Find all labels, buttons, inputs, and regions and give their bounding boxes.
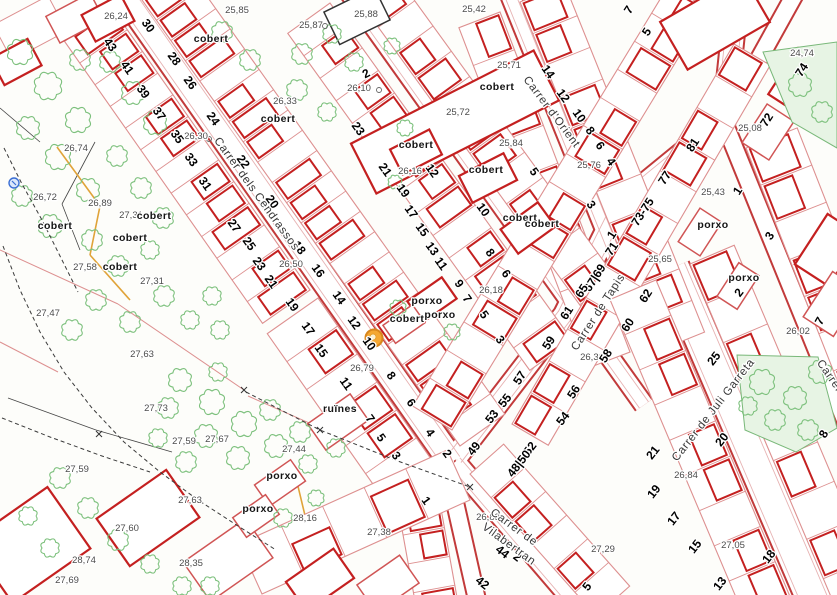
feature-label: cobert: [480, 81, 515, 93]
elevation-label: 27,59: [172, 436, 196, 447]
elevation-label: 25,08: [738, 123, 762, 134]
feature-label: cobert: [399, 139, 434, 151]
elevation-label: 25,43: [701, 187, 725, 198]
feature-label: cobert: [525, 218, 560, 230]
elevation-label: 27,58: [73, 262, 97, 273]
elevation-label: 25,84: [499, 138, 523, 149]
map-viewport[interactable]: 26,2425,8525,8725,8825,4226,1026,3326,16…: [0, 0, 837, 595]
elevation-label: 25,42: [462, 4, 486, 15]
elevation-label: 25,76: [577, 160, 601, 171]
elevation-label: 26,89: [88, 198, 112, 209]
elevation-label: 26,84: [674, 470, 698, 481]
elevation-label: 27,60: [115, 523, 139, 534]
elevation-label: 25,72: [446, 107, 470, 118]
elevation-label: 27,63: [178, 495, 202, 506]
feature-label: porxo: [728, 272, 759, 284]
feature-label: ruïnes: [323, 403, 357, 415]
elevation-label: 26,30: [184, 131, 208, 142]
feature-label: cobert: [194, 33, 229, 45]
elevation-label: 27,44: [282, 444, 306, 455]
feature-label: porxo: [242, 503, 273, 515]
elevation-label: 27,47: [36, 308, 60, 319]
elevation-label: 26,16: [398, 166, 422, 177]
elevation-label: 28,35: [179, 558, 203, 569]
elevation-label: 26,18: [479, 285, 503, 296]
elevation-label: 26,79: [350, 363, 374, 374]
feature-label: cobert: [103, 261, 138, 273]
elevation-label: 27,29: [591, 544, 615, 555]
elevation-label: 28,16: [293, 513, 317, 524]
feature-label: porxo: [424, 309, 455, 321]
elevation-label: 27,38: [367, 527, 391, 538]
elevation-label: 27,59: [65, 464, 89, 475]
elevation-label: 26,50: [279, 259, 303, 270]
elevation-label: 24,74: [790, 48, 814, 59]
feature-label: cobert: [137, 210, 172, 222]
elevation-label: 27,69: [55, 575, 79, 586]
elevation-label: 27,05: [721, 540, 745, 551]
elevation-label: 26,10: [347, 83, 371, 94]
feature-label: cobert: [390, 313, 425, 325]
feature-label: porxo: [411, 295, 442, 307]
feature-label: cobert: [113, 232, 148, 244]
building: [420, 531, 447, 559]
elevation-label: 26,74: [64, 143, 88, 154]
elevation-label: 25,88: [354, 9, 378, 20]
elevation-label: 26,72: [33, 192, 57, 203]
elevation-label: 27,31: [140, 276, 164, 287]
feature-label: porxo: [266, 470, 297, 482]
elevation-label: 25,71: [497, 60, 521, 71]
elevation-label: 26,24: [104, 11, 128, 22]
elevation-label: 25,65: [648, 254, 672, 265]
feature-label: cobert: [469, 164, 504, 176]
elevation-label: 27,67: [205, 434, 229, 445]
feature-label: cobert: [261, 113, 296, 125]
elevation-label: 25,87: [299, 20, 323, 31]
elevation-label: 27,73: [144, 403, 168, 414]
elevation-label: 28,74: [72, 555, 96, 566]
elevation-label: 26,02: [786, 326, 810, 337]
feature-label: porxo: [697, 219, 728, 231]
elevation-label: 27,63: [130, 349, 154, 360]
elevation-label: 26,33: [273, 96, 297, 107]
elevation-label: 25,85: [225, 5, 249, 16]
feature-label: cobert: [38, 220, 73, 232]
cadastral-map-canvas[interactable]: 26,2425,8525,8725,8825,4226,1026,3326,16…: [0, 0, 837, 595]
